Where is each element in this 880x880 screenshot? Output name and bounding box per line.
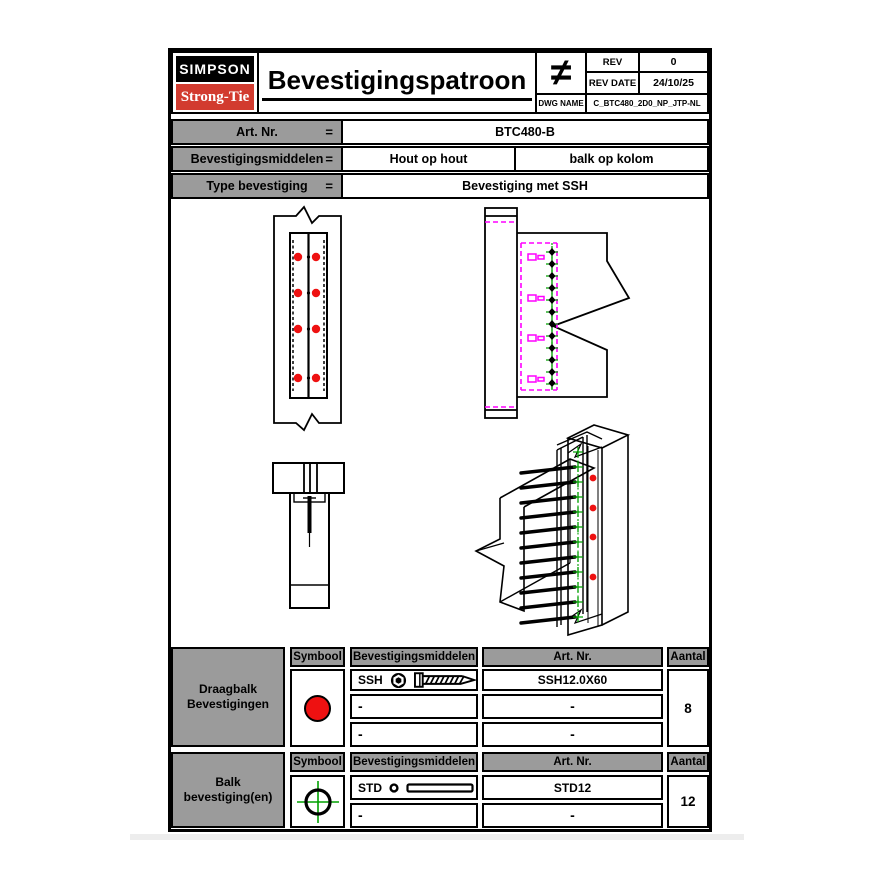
header-symbool: Symbool [290, 647, 345, 667]
qty-draagbalk: 8 [667, 669, 709, 747]
rev-label: REV [585, 51, 640, 73]
fasteners-label: Bevestigingsmiddelen [191, 152, 324, 166]
rev-date-value: 24/10/25 [638, 71, 709, 95]
fasteners-value-2: balk op kolom [514, 146, 709, 172]
fastener-cell-empty: - [350, 694, 478, 719]
drawing-sheet: SIMPSON Strong-Tie Bevestigingspatroon ≠… [168, 48, 712, 832]
dash: - [358, 811, 363, 819]
art-nr-empty: - [482, 803, 663, 828]
art-nr-value: BTC480-B [341, 119, 709, 145]
header-aantal: Aantal [667, 752, 709, 772]
rev-value: 0 [638, 51, 709, 73]
dowel-icon [406, 783, 474, 793]
hex-nut-icon [390, 672, 407, 689]
logo-simpson: SIMPSON [176, 56, 254, 82]
header-art-nr: Art. Nr. [482, 752, 663, 772]
hidden-plate-lines [485, 222, 557, 407]
fasteners-label-cell: Bevestigingsmiddelen = [171, 146, 343, 172]
dowel-end-icon [389, 783, 399, 793]
fastener-name: STD [358, 781, 382, 795]
type-label: Type bevestiging [206, 179, 307, 193]
fastener-cell-empty: - [350, 803, 478, 828]
art-nr-value-std: STD12 [482, 775, 663, 800]
symbol-cell-balk [290, 775, 345, 828]
not-equal-symbol-box: ≠ [535, 51, 587, 95]
symbol-cell-draagbalk [290, 669, 345, 747]
group-cell-balk: Balk bevestiging(en) [171, 752, 285, 828]
group-label-line1: Balk [184, 775, 273, 790]
fastener-cell-std: STD [350, 775, 478, 800]
dwg-name-value: C_BTC480_2D0_NP_JTP-NL [585, 93, 709, 114]
section-screw [303, 496, 316, 547]
isometric-view-drawing [476, 425, 628, 635]
group-cell-draagbalk: Draagbalk Bevestigingen [171, 647, 285, 747]
side-view-drawing [485, 208, 629, 418]
logo-strongtie: Strong-Tie [176, 84, 254, 110]
header-bevestigingsmiddelen: Bevestigingsmiddelen [350, 752, 478, 772]
art-nr-empty: - [482, 722, 663, 747]
fastener-name: SSH [358, 673, 383, 687]
technical-drawings [171, 199, 709, 645]
fasteners-value-1: Hout op hout [341, 146, 516, 172]
qty-balk: 12 [667, 775, 709, 828]
isometric-red-dots [590, 475, 597, 581]
art-nr-label: Art. Nr. [236, 125, 278, 139]
equals-sign: = [325, 179, 333, 194]
group-label-line2: Bevestigingen [187, 697, 269, 712]
page-title: Bevestigingspatroon [262, 65, 533, 101]
red-circle-icon [304, 695, 331, 722]
fastener-cell-ssh: SSH [350, 669, 478, 691]
equals-sign: = [325, 152, 333, 167]
screw-icon [414, 672, 476, 688]
title-box: Bevestigingspatroon [257, 51, 537, 114]
dash: - [358, 702, 363, 710]
section-view-drawing [273, 463, 344, 608]
rev-date-label: REV DATE [585, 71, 640, 95]
group-label-line1: Draagbalk [187, 682, 269, 697]
type-value: Bevestiging met SSH [341, 173, 709, 199]
front-view-screw-dots [294, 253, 320, 382]
dwg-name-label: DWG NAME [535, 93, 587, 114]
isometric-screws [521, 467, 575, 623]
equals-sign: = [325, 125, 333, 140]
hidden-screw-symbols [528, 254, 544, 382]
fastener-cell-empty: - [350, 722, 478, 747]
header-symbool: Symbool [290, 752, 345, 772]
logo: SIMPSON Strong-Tie [171, 51, 259, 114]
front-view-drawing [274, 207, 341, 430]
art-nr-empty: - [482, 694, 663, 719]
art-nr-label-cell: Art. Nr. = [171, 119, 343, 145]
header-art-nr: Art. Nr. [482, 647, 663, 667]
header-bevestigingsmiddelen: Bevestigingsmiddelen [350, 647, 478, 667]
sheet-shadow [130, 834, 744, 840]
dash: - [358, 730, 363, 738]
group-label-line2: bevestiging(en) [184, 790, 273, 805]
header-aantal: Aantal [667, 647, 709, 667]
type-label-cell: Type bevestiging = [171, 173, 343, 199]
art-nr-value-ssh: SSH12.0X60 [482, 669, 663, 691]
not-equal-icon: ≠ [551, 54, 572, 92]
crosshair-circle-icon [295, 779, 341, 825]
